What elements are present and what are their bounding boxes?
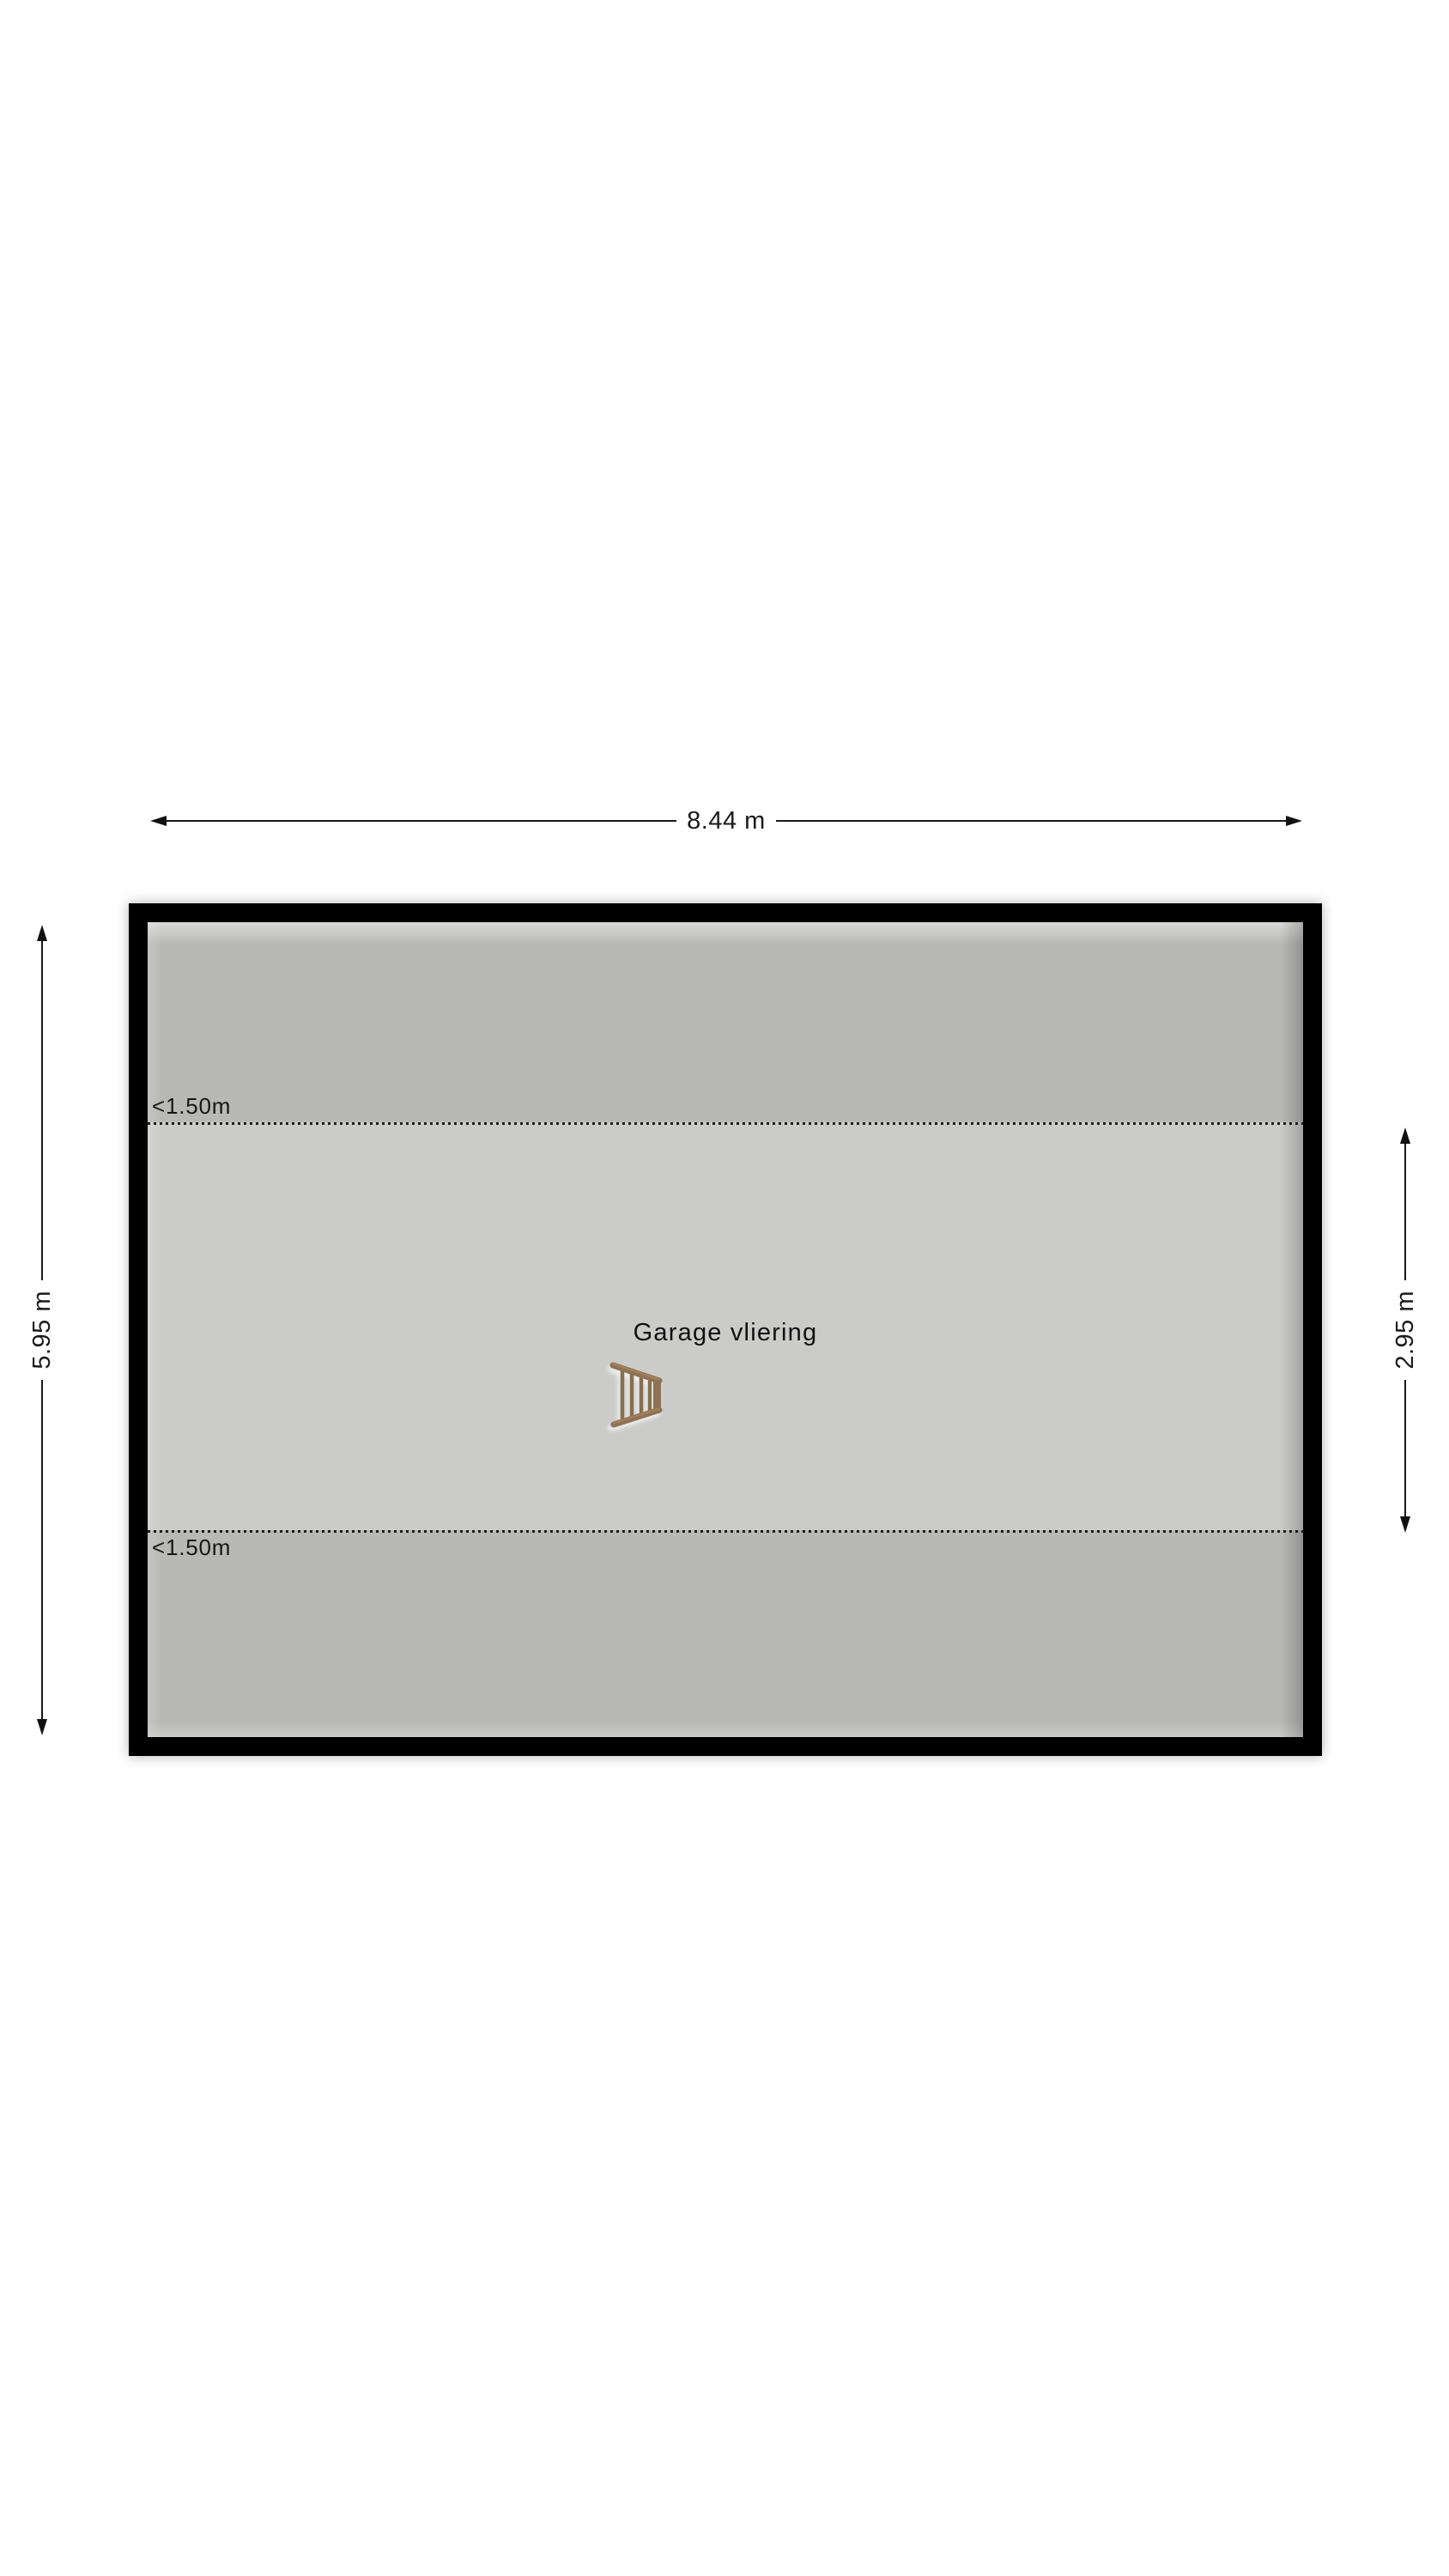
arrowhead-up-icon <box>37 925 47 941</box>
low-headroom-area-top <box>148 922 1303 1122</box>
arrowhead-down-icon <box>37 1719 47 1735</box>
dimension-line <box>776 820 1286 822</box>
dimension-height-label: 5.95 m <box>30 1280 55 1380</box>
arrowhead-up-icon <box>1400 1127 1410 1144</box>
dimension-width-label: 8.44 m <box>676 809 776 834</box>
dimension-line <box>41 1380 43 1719</box>
floorplan-page: 8.44 m 5.95 m 2.95 m <1.50m <1.50m Garag… <box>0 0 1449 2576</box>
room-label: Garage vliering <box>148 1318 1303 1347</box>
room-outline: <1.50m <1.50m Garage vliering <box>129 903 1322 1756</box>
height-marker-top: <1.50m <box>152 1093 231 1120</box>
dimension-line <box>1404 1380 1406 1516</box>
dimension-middle-height-label: 2.95 m <box>1393 1280 1418 1380</box>
height-marker-bottom: <1.50m <box>152 1534 231 1561</box>
height-limit-line-top <box>148 1122 1303 1125</box>
dimension-line <box>1404 1144 1406 1280</box>
dimension-middle-height: 2.95 m <box>1397 1127 1414 1533</box>
dimension-width: 8.44 m <box>150 812 1302 829</box>
dimension-line <box>41 941 43 1280</box>
arrowhead-right-icon <box>1286 816 1302 826</box>
height-limit-line-bottom <box>148 1530 1303 1533</box>
room-interior: <1.50m <1.50m Garage vliering <box>148 922 1303 1737</box>
arrowhead-down-icon <box>1400 1516 1410 1533</box>
dimension-height: 5.95 m <box>33 925 51 1735</box>
ladder-icon <box>608 1356 664 1431</box>
arrowhead-left-icon <box>150 816 167 826</box>
dimension-line <box>167 820 676 822</box>
low-headroom-area-bottom <box>148 1530 1303 1737</box>
